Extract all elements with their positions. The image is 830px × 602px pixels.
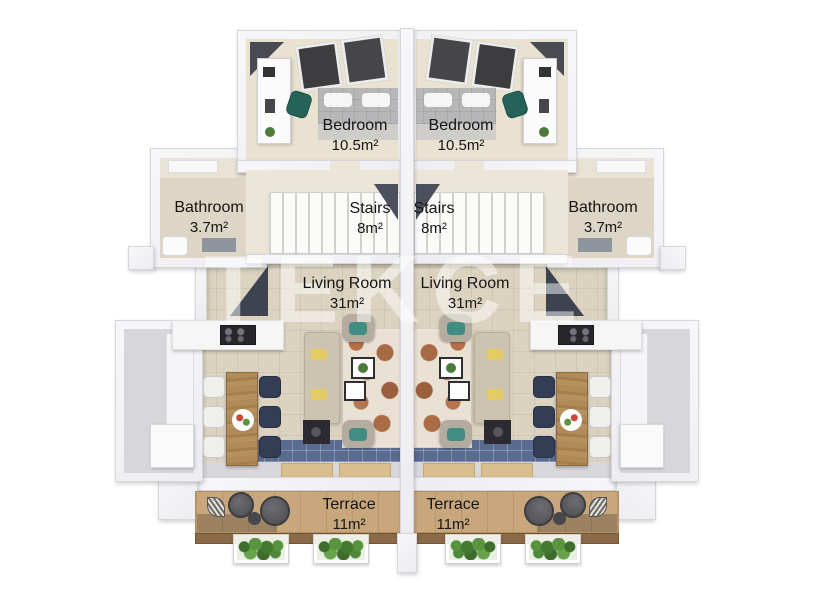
room-name: Terrace bbox=[293, 495, 405, 515]
room-name: Bedroom bbox=[299, 116, 411, 136]
room-area: 11m² bbox=[397, 515, 509, 535]
label-living-left: Living Room 31m² bbox=[291, 274, 403, 314]
label-terrace-right: Terrace 11m² bbox=[397, 495, 509, 535]
label-living-right: Living Room 31m² bbox=[409, 274, 521, 314]
room-area: 11m² bbox=[293, 515, 405, 535]
floor-plan: TEKCE Bedroom 10.5m² Bedroom 10.5m² Bath… bbox=[0, 0, 830, 602]
room-name: Bedroom bbox=[405, 116, 517, 136]
label-bedroom-right: Bedroom 10.5m² bbox=[405, 116, 517, 156]
room-area: 8m² bbox=[378, 219, 490, 239]
label-bathroom-left: Bathroom 3.7m² bbox=[153, 198, 265, 238]
label-bathroom-right: Bathroom 3.7m² bbox=[547, 198, 659, 238]
room-area: 31m² bbox=[291, 294, 403, 314]
room-area: 10.5m² bbox=[299, 136, 411, 156]
room-name: Bathroom bbox=[547, 198, 659, 218]
room-name: Living Room bbox=[409, 274, 521, 294]
room-name: Living Room bbox=[291, 274, 403, 294]
label-bedroom-left: Bedroom 10.5m² bbox=[299, 116, 411, 156]
label-stairs-right: Stairs 8m² bbox=[378, 199, 490, 239]
room-area: 3.7m² bbox=[153, 218, 265, 238]
room-area: 31m² bbox=[409, 294, 521, 314]
room-name: Stairs bbox=[378, 199, 490, 219]
room-area: 10.5m² bbox=[405, 136, 517, 156]
room-labels: Bedroom 10.5m² Bedroom 10.5m² Bathroom 3… bbox=[0, 0, 830, 602]
room-name: Bathroom bbox=[153, 198, 265, 218]
label-terrace-left: Terrace 11m² bbox=[293, 495, 405, 535]
room-name: Terrace bbox=[397, 495, 509, 515]
room-area: 3.7m² bbox=[547, 218, 659, 238]
